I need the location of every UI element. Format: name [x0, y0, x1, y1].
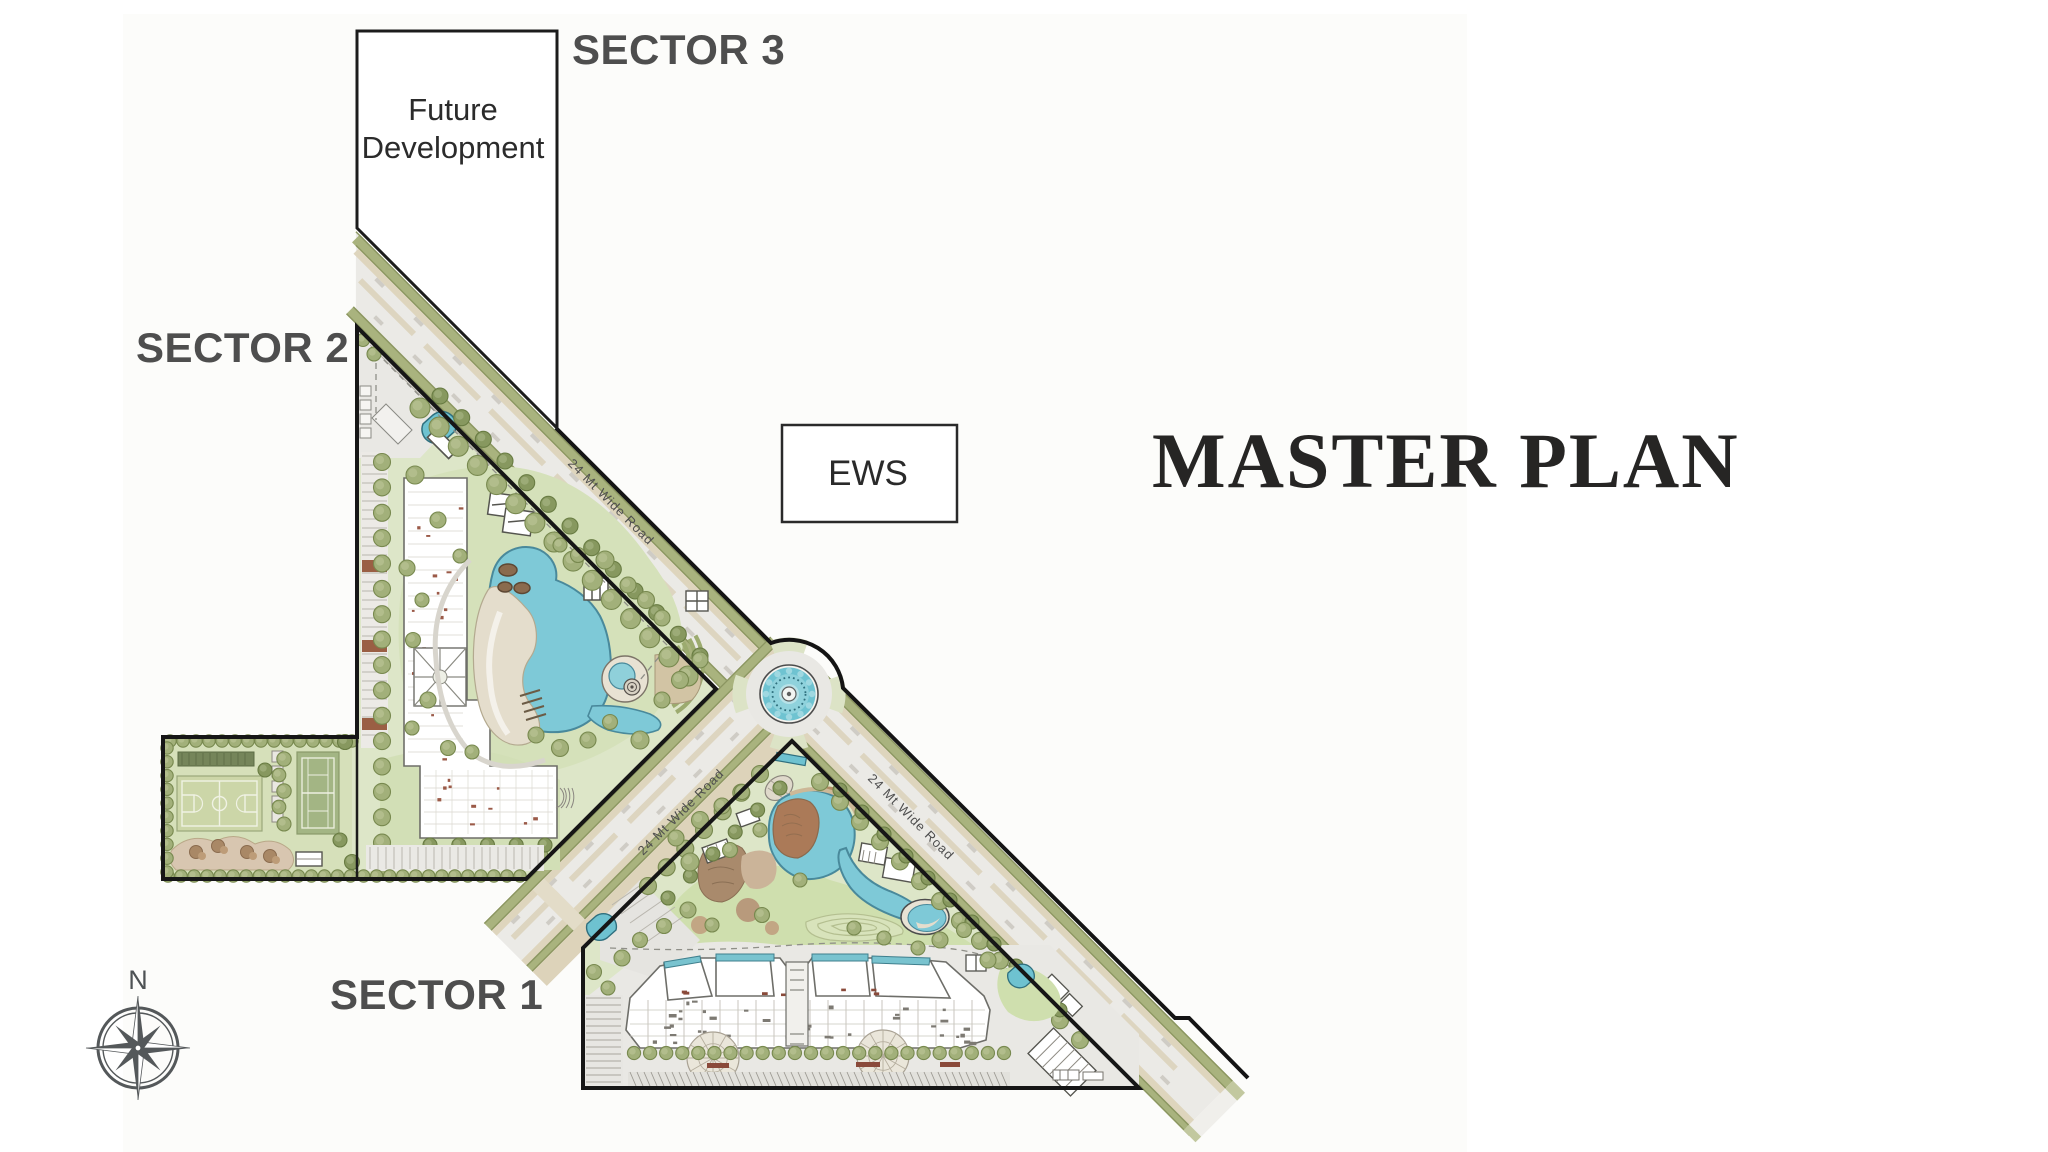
- svg-text:SECTOR 1: SECTOR 1: [330, 971, 543, 1018]
- svg-text:MASTER PLAN: MASTER PLAN: [1152, 417, 1740, 504]
- svg-text:SECTOR 2: SECTOR 2: [136, 324, 349, 371]
- svg-text:N: N: [128, 965, 148, 995]
- svg-text:SECTOR 3: SECTOR 3: [572, 26, 785, 73]
- svg-text:Development: Development: [362, 130, 545, 165]
- svg-text:Future: Future: [408, 92, 498, 127]
- svg-text:EWS: EWS: [828, 454, 908, 493]
